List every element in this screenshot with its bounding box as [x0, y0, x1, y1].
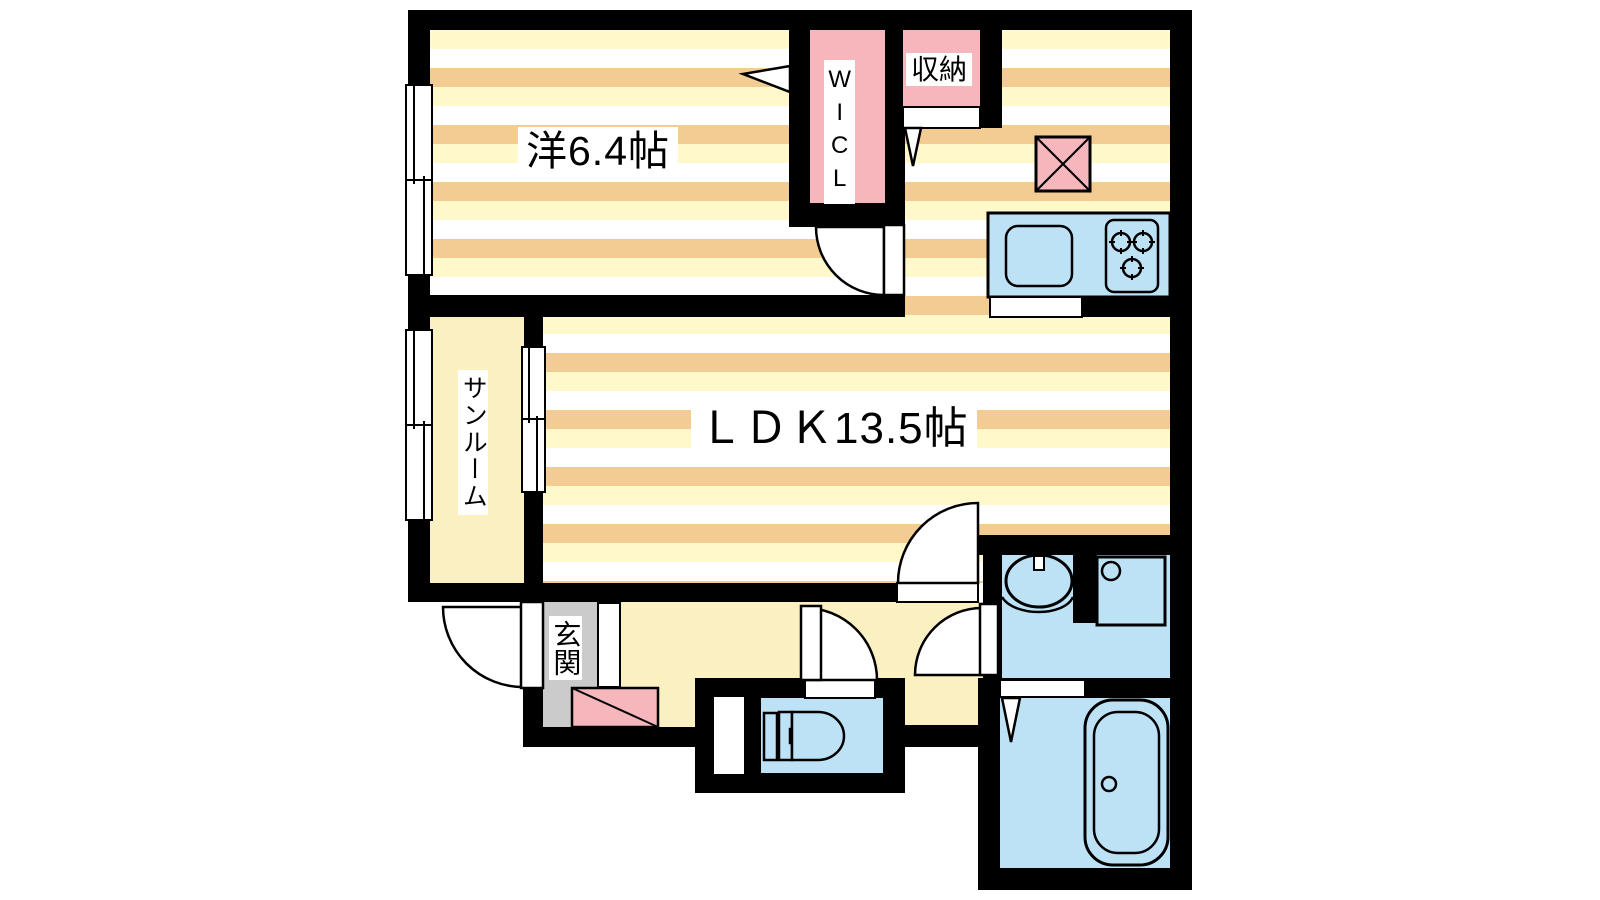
wall-bottom-main: [408, 583, 978, 602]
wall-bathroom-bottom: [978, 868, 1192, 890]
label-storage: 収納: [906, 53, 972, 86]
sunroom-window-right: [522, 347, 545, 492]
hallway-nook-floor: [905, 678, 978, 725]
wall-right: [1170, 10, 1192, 890]
entrance-door: [443, 602, 543, 688]
floorplan-canvas: 洋6.4帖 ＬＤＫ13.5帖 WICL 収納 サンルーム 玄関: [0, 0, 1600, 900]
washing-machine-icon: [1097, 557, 1165, 625]
label-sunroom: サンルーム: [458, 370, 488, 515]
wall-entrance-bottom: [523, 727, 695, 747]
wall-top: [408, 10, 1192, 30]
entrance-hall-opening: [598, 603, 620, 687]
wall-western-ldk: [408, 295, 905, 317]
western-room-window: [406, 85, 432, 275]
refrigerator-icon: [1036, 137, 1090, 191]
toilet-window: [713, 696, 745, 775]
sunroom-window-left: [406, 330, 432, 520]
label-entrance: 玄関: [549, 616, 582, 680]
shoe-cabinet-icon: [572, 688, 658, 727]
wall-washroom-top: [978, 535, 1170, 555]
counter-opening: [990, 297, 1082, 317]
label-ldk: ＬＤＫ13.5帖: [691, 403, 977, 455]
wall-entrance-stub: [523, 688, 543, 727]
wall-nook-bottom: [905, 725, 1000, 747]
wall-bathroom-left: [978, 678, 1000, 890]
toilet-icon: [764, 712, 844, 760]
bathtub-icon: [1085, 700, 1168, 865]
label-western-room: 洋6.4帖: [518, 127, 678, 176]
wall-under-counter: [1082, 297, 1170, 317]
label-wicl: WICL: [824, 60, 855, 204]
wall-basin-divider: [1073, 553, 1097, 623]
